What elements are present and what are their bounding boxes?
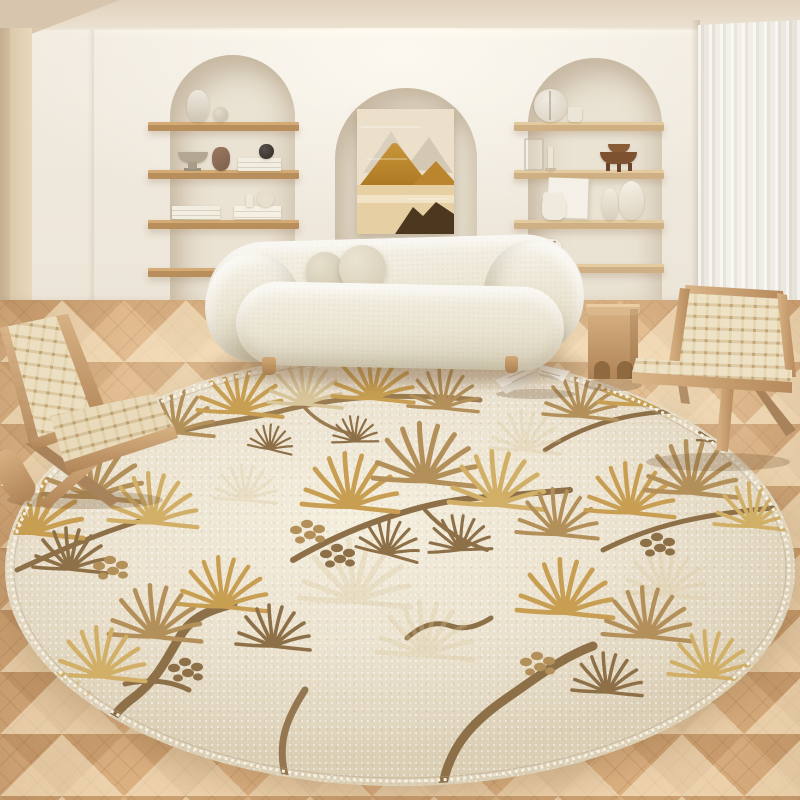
split-disc-sculpture bbox=[534, 89, 567, 122]
small-cup bbox=[568, 107, 582, 122]
right-shelf-1 bbox=[514, 122, 664, 131]
stacked-books bbox=[238, 158, 281, 171]
bowl-leg bbox=[606, 163, 610, 171]
living-room-scene bbox=[0, 0, 800, 800]
oval-vase bbox=[619, 181, 644, 220]
stacked-books bbox=[172, 206, 220, 219]
sphere-vase bbox=[213, 107, 228, 122]
sofa-wood-foot bbox=[505, 356, 518, 373]
bowl-leg bbox=[617, 164, 621, 172]
sofa-wood-foot bbox=[262, 357, 276, 375]
narrow-vase bbox=[602, 188, 618, 220]
right-woven-chair bbox=[630, 284, 800, 480]
white-box bbox=[234, 206, 281, 219]
clay-jug bbox=[212, 147, 230, 171]
wall-seam-shadow bbox=[88, 30, 94, 310]
left-woven-chair bbox=[0, 314, 180, 510]
left-wall-edge bbox=[0, 28, 10, 312]
bowl-leg bbox=[628, 163, 632, 171]
white-urn-vase bbox=[187, 90, 209, 122]
right-shelf-2 bbox=[514, 170, 664, 179]
right-shelf-3 bbox=[514, 220, 664, 229]
triple-candle-holder bbox=[542, 198, 566, 220]
glass-vase bbox=[524, 138, 544, 171]
ceiling bbox=[0, 0, 800, 30]
small-candle bbox=[246, 194, 253, 207]
left-wall-panel bbox=[10, 28, 32, 312]
cove-light-glow bbox=[0, 28, 800, 46]
left-shelf-3 bbox=[148, 220, 299, 229]
left-shelf-1 bbox=[148, 122, 299, 131]
mountain-artwork bbox=[357, 109, 454, 234]
left-shelf-2 bbox=[148, 170, 299, 179]
taper-candle bbox=[548, 146, 553, 171]
ring-vase bbox=[257, 191, 274, 207]
